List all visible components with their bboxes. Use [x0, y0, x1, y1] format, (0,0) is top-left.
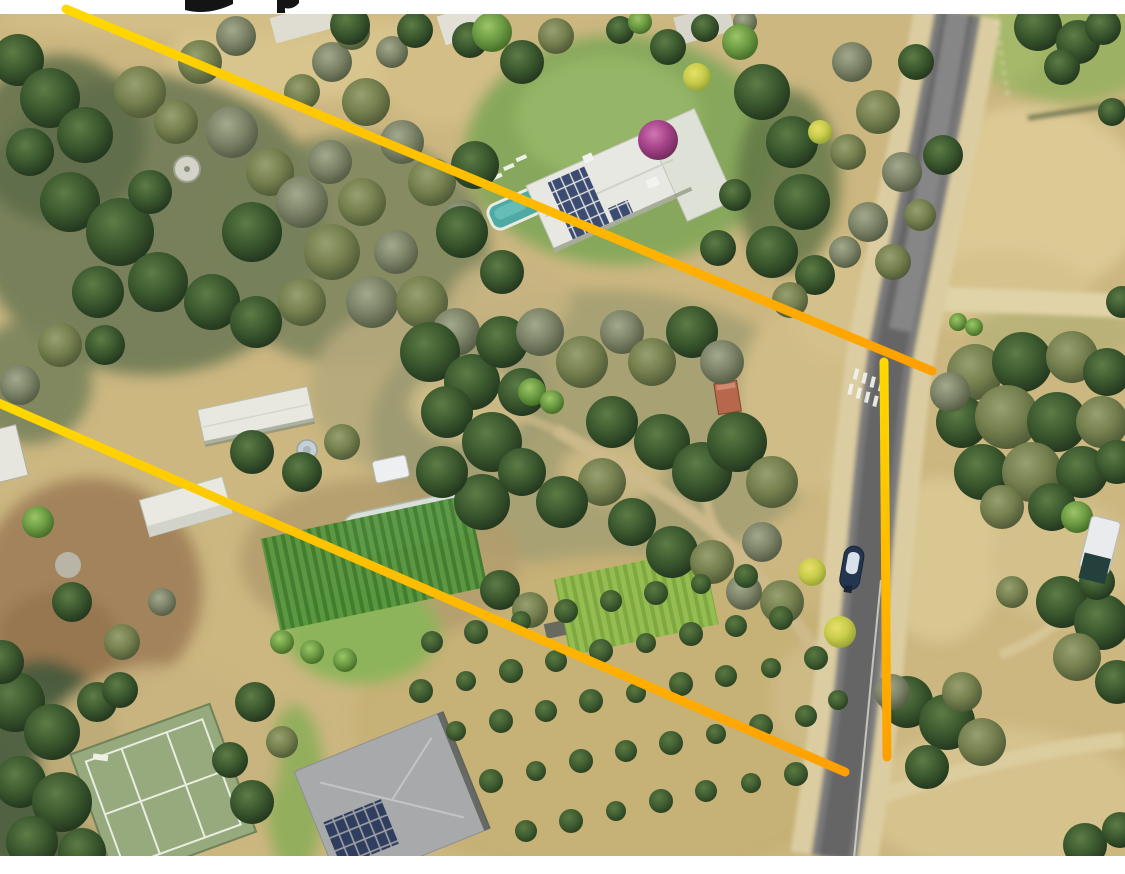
top-banner: [0, 0, 1125, 14]
magenta-flowering-tree: [638, 120, 678, 160]
screenshot: [0, 0, 1125, 874]
boundary-line-road: [884, 362, 887, 757]
aerial-photo: [0, 0, 1125, 874]
pond: [55, 552, 81, 578]
red-shed: [714, 380, 742, 414]
bottom-banner: [0, 856, 1125, 874]
